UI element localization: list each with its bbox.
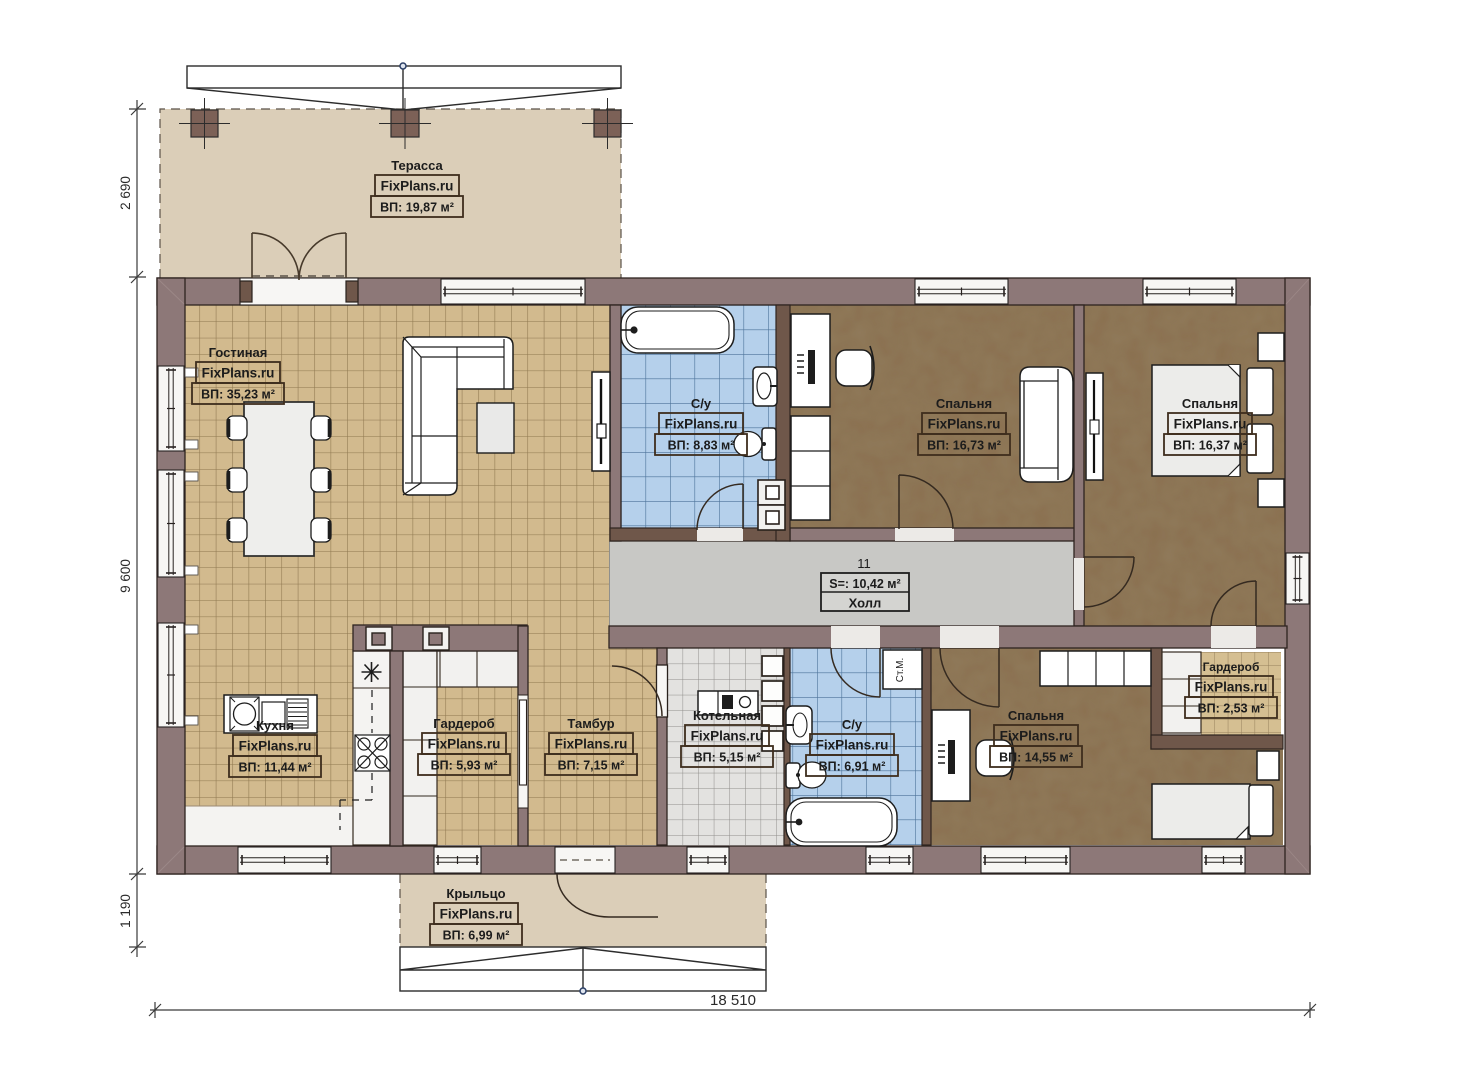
svg-text:ВП: 35,23 м²: ВП: 35,23 м² (201, 388, 275, 402)
svg-text:S=: 10,42 м²: S=: 10,42 м² (829, 577, 900, 591)
svg-text:ВП: 8,83 м²: ВП: 8,83 м² (668, 439, 735, 453)
svg-text:ВП: 6,91 м²: ВП: 6,91 м² (819, 760, 886, 774)
svg-text:ВП: 19,87 м²: ВП: 19,87 м² (380, 201, 454, 215)
svg-text:Гардероб: Гардероб (1203, 660, 1260, 674)
svg-text:Тамбур: Тамбур (567, 716, 614, 731)
svg-text:ВП: 16,73 м²: ВП: 16,73 м² (927, 439, 1001, 453)
svg-text:FixPlans.ru: FixPlans.ru (691, 729, 764, 744)
svg-text:Кухня: Кухня (256, 718, 294, 733)
svg-text:ВП: 6,99 м²: ВП: 6,99 м² (443, 929, 510, 943)
svg-text:FixPlans.ru: FixPlans.ru (1000, 729, 1073, 744)
svg-text:Гостиная: Гостиная (209, 345, 268, 360)
svg-text:Терасса: Терасса (391, 158, 443, 173)
svg-text:FixPlans.ru: FixPlans.ru (1195, 680, 1268, 695)
svg-text:FixPlans.ru: FixPlans.ru (1174, 417, 1247, 432)
svg-text:18 510: 18 510 (710, 992, 756, 1009)
svg-text:11: 11 (857, 556, 871, 571)
svg-text:ВП: 14,55 м²: ВП: 14,55 м² (999, 751, 1073, 765)
svg-text:FixPlans.ru: FixPlans.ru (665, 417, 738, 432)
svg-text:С/у: С/у (691, 396, 712, 411)
svg-text:FixPlans.ru: FixPlans.ru (555, 737, 628, 752)
svg-text:Ст.М.: Ст.М. (895, 658, 906, 683)
svg-text:Спальня: Спальня (936, 396, 992, 411)
svg-text:FixPlans.ru: FixPlans.ru (428, 737, 501, 752)
svg-text:1 190: 1 190 (118, 894, 133, 928)
svg-text:ВП: 16,37 м²: ВП: 16,37 м² (1173, 439, 1247, 453)
svg-text:ВП: 7,15 м²: ВП: 7,15 м² (558, 759, 625, 773)
svg-text:ВП: 11,44 м²: ВП: 11,44 м² (238, 761, 311, 775)
svg-text:Гардероб: Гардероб (433, 716, 494, 731)
svg-text:9 600: 9 600 (118, 559, 133, 593)
svg-text:С/у: С/у (842, 717, 863, 732)
svg-text:FixPlans.ru: FixPlans.ru (928, 417, 1001, 432)
svg-text:ВП: 2,53 м²: ВП: 2,53 м² (1198, 702, 1265, 716)
svg-text:Крыльцо: Крыльцо (446, 886, 505, 901)
svg-text:Холл: Холл (849, 596, 882, 611)
svg-text:ВП: 5,15 м²: ВП: 5,15 м² (694, 751, 761, 765)
svg-text:FixPlans.ru: FixPlans.ru (440, 907, 513, 922)
svg-text:FixPlans.ru: FixPlans.ru (816, 738, 889, 753)
svg-text:Котельная: Котельная (693, 708, 761, 723)
svg-text:FixPlans.ru: FixPlans.ru (202, 366, 275, 381)
svg-text:ВП: 5,93 м²: ВП: 5,93 м² (431, 759, 498, 773)
svg-text:Спальня: Спальня (1008, 708, 1064, 723)
svg-text:Спальня: Спальня (1182, 396, 1238, 411)
svg-text:FixPlans.ru: FixPlans.ru (381, 179, 454, 194)
svg-text:2 690: 2 690 (118, 176, 133, 210)
svg-text:FixPlans.ru: FixPlans.ru (239, 739, 312, 754)
